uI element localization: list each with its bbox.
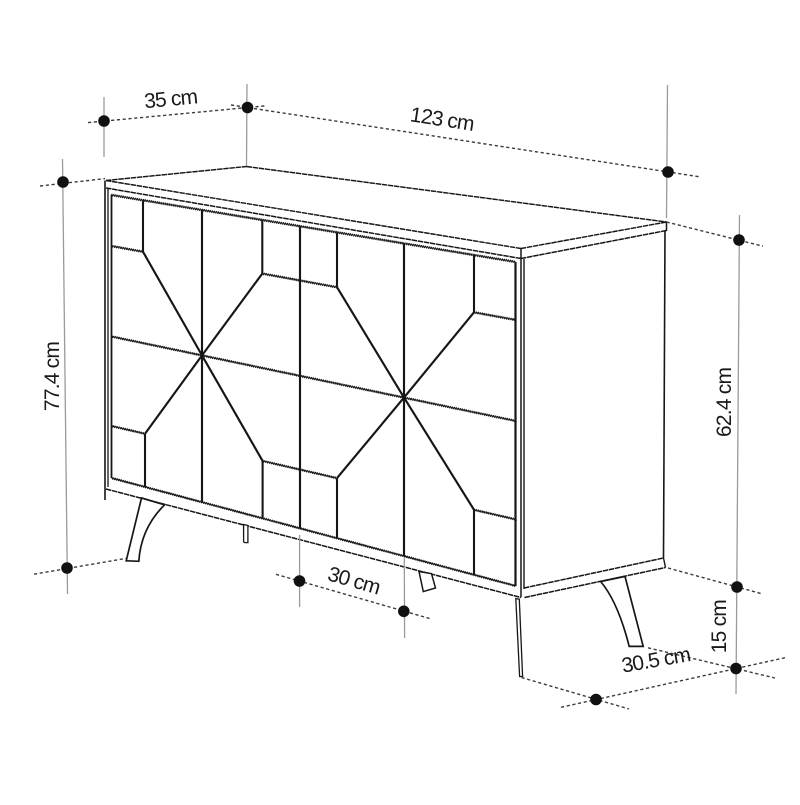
svg-text:77.4 cm: 77.4 cm: [41, 342, 64, 411]
svg-text:62.4 cm: 62.4 cm: [713, 368, 736, 437]
svg-text:15 cm: 15 cm: [708, 600, 731, 653]
